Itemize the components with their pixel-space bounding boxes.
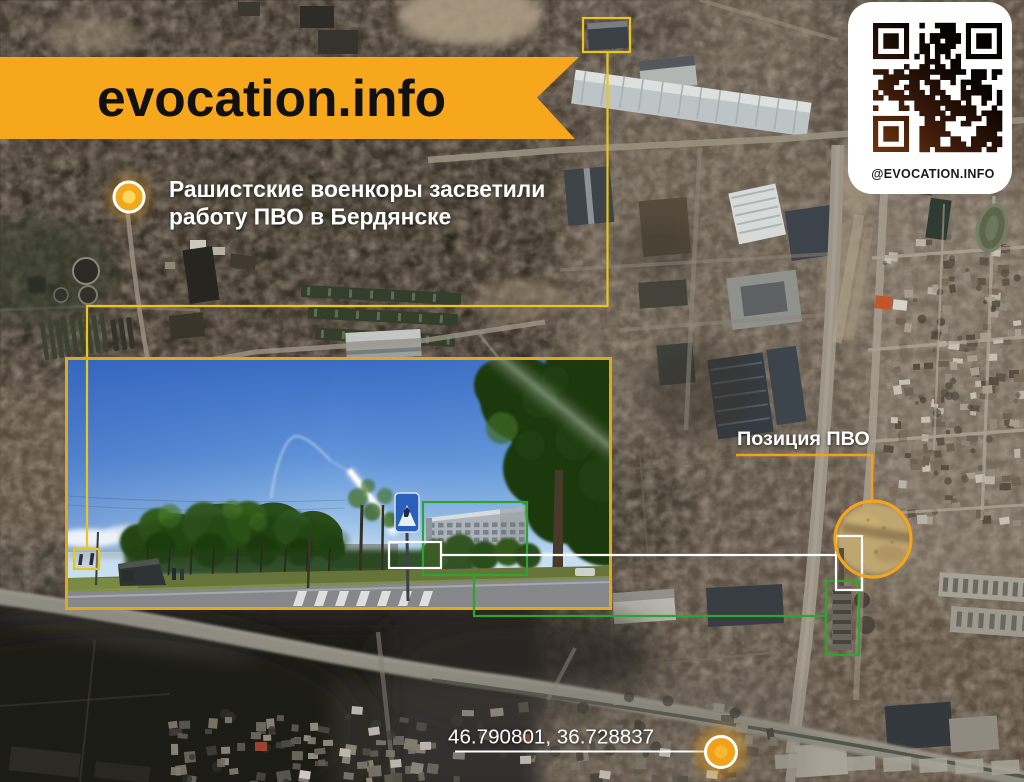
svg-text:работу ПВО в Бердянске: работу ПВО в Бердянске	[169, 204, 451, 230]
svg-text:46.790801, 36.728837: 46.790801, 36.728837	[448, 726, 654, 749]
svg-text:Позиция ПВО: Позиция ПВО	[737, 428, 870, 450]
svg-text:@EVOCATION.INFO: @EVOCATION.INFO	[871, 167, 994, 181]
svg-text:evocation.info: evocation.info	[97, 69, 446, 127]
svg-text:Рашистские военкоры засветили: Рашистские военкоры засветили	[169, 176, 545, 202]
